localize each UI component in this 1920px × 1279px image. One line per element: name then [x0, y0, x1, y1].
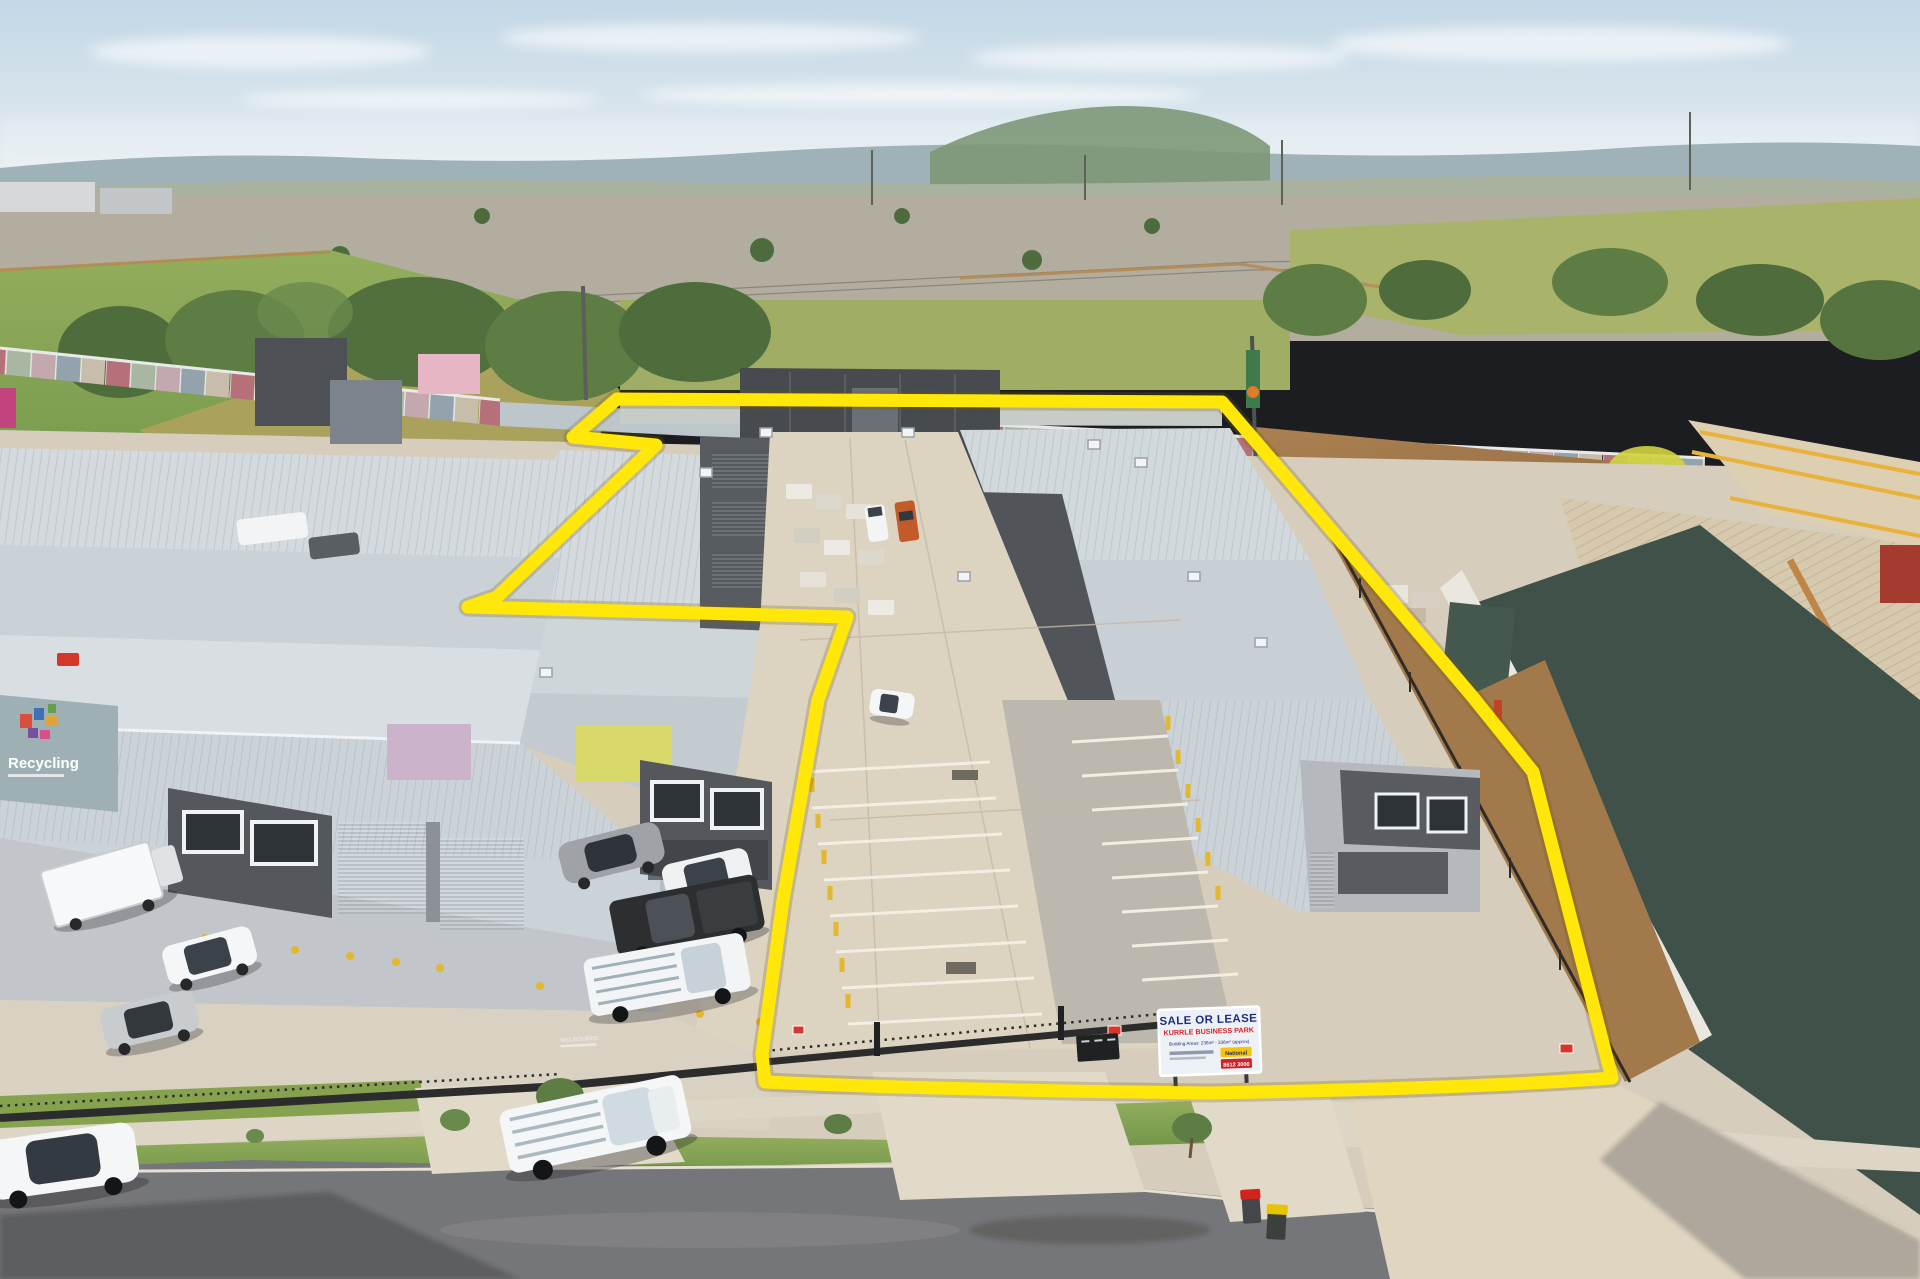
agent-mini-sign — [1560, 1044, 1573, 1053]
aerial-photo: Recycling — [0, 0, 1920, 1279]
office-window — [712, 790, 762, 828]
gate-post — [874, 1022, 880, 1056]
distant-shed — [0, 182, 95, 212]
office-window — [252, 822, 316, 864]
red-container — [1880, 545, 1920, 603]
carport-shadow — [1338, 852, 1448, 894]
roller-door — [440, 838, 524, 930]
roller-door — [338, 822, 426, 914]
roof-ribs — [0, 448, 560, 558]
mural-subtext-bar — [8, 774, 64, 777]
pink-panel — [418, 354, 480, 394]
roller-door — [1310, 852, 1334, 908]
drain-pit — [952, 770, 978, 780]
sign-brand-text: National — [1225, 1050, 1248, 1057]
mural-text: Recycling — [8, 755, 79, 772]
mural-wall — [0, 695, 118, 812]
tree-shadow-road — [970, 1216, 1210, 1244]
gate-post — [1058, 1006, 1064, 1040]
distant-shed — [100, 188, 172, 214]
office-window — [1376, 794, 1418, 828]
right-front-office — [1300, 760, 1480, 912]
lavender-panel — [387, 724, 471, 780]
door-pier — [426, 822, 440, 922]
office-window — [1428, 798, 1466, 832]
road-wear — [440, 1212, 960, 1248]
bin-yellow — [1265, 1204, 1288, 1240]
sign-phone-text: 8612 3000 — [1223, 1062, 1250, 1069]
scene: Recycling — [0, 0, 1920, 1279]
office-window — [652, 782, 702, 820]
mesh-structure — [330, 380, 402, 444]
bin-lid-yellow — [1266, 1204, 1287, 1215]
fence-sign-melbourne: MELBOURNE — [560, 1036, 599, 1048]
office-window — [184, 812, 242, 852]
magenta-panel — [0, 388, 16, 428]
bin-lid-red — [1240, 1189, 1261, 1200]
bin-red — [1240, 1189, 1262, 1224]
mailboxes — [1076, 1033, 1120, 1062]
agent-mini-sign — [793, 1026, 804, 1034]
drain-pit — [946, 962, 976, 974]
logo-red — [57, 653, 79, 666]
